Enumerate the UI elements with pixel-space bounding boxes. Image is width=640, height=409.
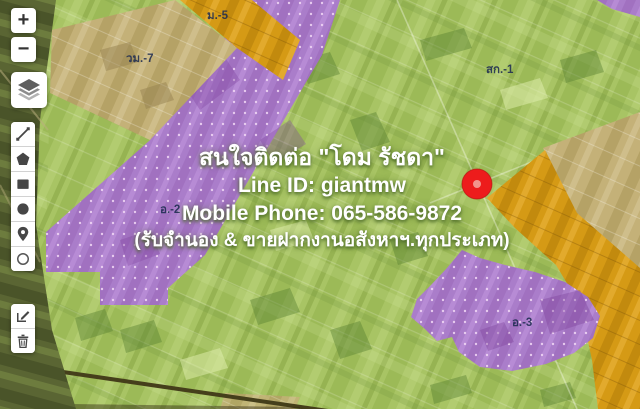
marker-center-dot: [473, 180, 481, 188]
draw-toolbar: [11, 122, 35, 271]
trash-icon: [14, 332, 32, 350]
zone-label-wm7: วม.-7: [126, 53, 153, 65]
zone-label-m5: ม.-5: [207, 10, 229, 22]
zoom-in-label: +: [18, 9, 30, 32]
circle-icon: [14, 200, 32, 218]
polyline-icon: [14, 125, 32, 143]
edit-layers-button[interactable]: [11, 304, 35, 329]
zoning-map: ม.-5 วม.-7 สก.-1 อ.-2 อ.-3: [0, 0, 640, 409]
zone-label-o2: อ.-2: [160, 204, 180, 216]
layers-icon: [15, 76, 43, 104]
red-circle-marker[interactable]: [462, 169, 492, 199]
edit-toolbar: [11, 304, 35, 353]
edit-icon: [14, 307, 32, 325]
marker-icon: [14, 225, 32, 243]
draw-polyline-button[interactable]: [11, 122, 35, 147]
draw-marker-button[interactable]: [11, 222, 35, 247]
zone-label-sk1: สก.-1: [486, 64, 514, 76]
zone-label-o3: อ.-3: [512, 317, 532, 329]
layers-control-button[interactable]: [11, 72, 47, 108]
draw-rectangle-button[interactable]: [11, 172, 35, 197]
draw-circlemarker-button[interactable]: [11, 247, 35, 271]
draw-circle-button[interactable]: [11, 197, 35, 222]
rectangle-icon: [14, 175, 32, 193]
map-canvas[interactable]: ม.-5 วม.-7 สก.-1 อ.-2 อ.-3 สนใจติดต่อ "โ…: [0, 0, 640, 409]
zoom-out-label: −: [18, 38, 30, 61]
delete-layers-button[interactable]: [11, 329, 35, 353]
draw-polygon-button[interactable]: [11, 147, 35, 172]
zoom-out-button[interactable]: −: [11, 37, 36, 62]
circle-marker-icon: [14, 250, 32, 268]
zoom-in-button[interactable]: +: [11, 8, 36, 33]
polygon-icon: [14, 150, 32, 168]
